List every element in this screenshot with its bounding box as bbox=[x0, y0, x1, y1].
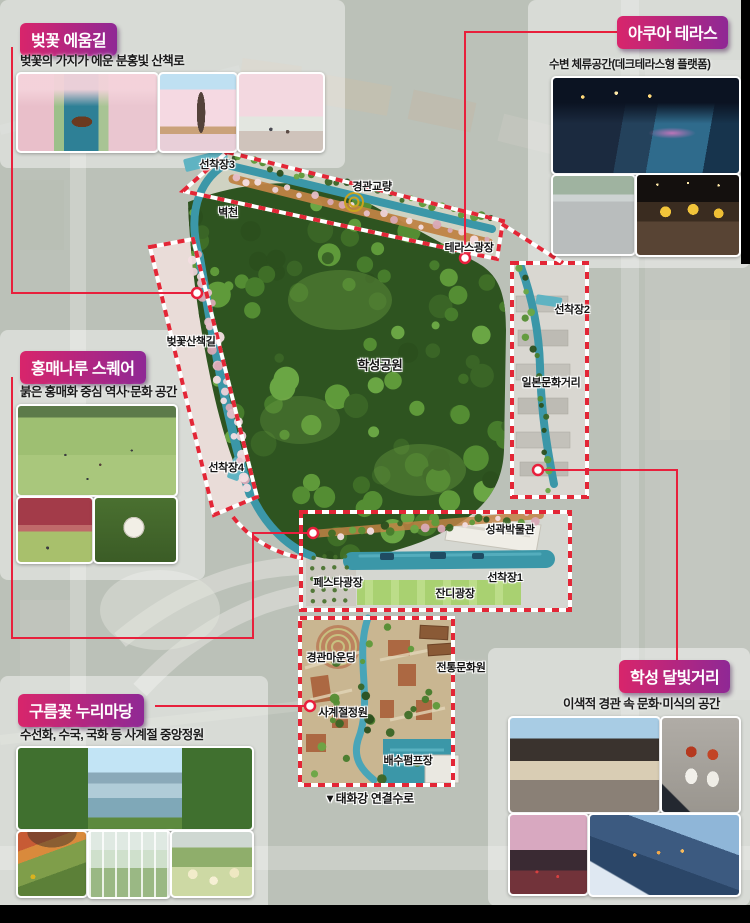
card-title-aqua-terrace: 아쿠아 테라스 bbox=[617, 16, 728, 49]
photo-cherry-canal-boat bbox=[16, 72, 159, 153]
frame-bar-bottom bbox=[0, 905, 750, 923]
marker-japan-street bbox=[533, 465, 543, 475]
card-desc-hongmae-square: 붉은 홍매화 중심 역사·문화 공간 bbox=[20, 381, 177, 400]
card-desc-aqua-terrace: 수변 체류공간(데크테라스형 플랫폼) bbox=[549, 56, 710, 72]
map-label-dock2: 선착장2 bbox=[554, 301, 589, 317]
card-title-hongmae-square: 홍매나루 스퀘어 bbox=[20, 351, 146, 384]
map-label-traditional-culture-center: 전통문화원 bbox=[436, 659, 485, 675]
map-label-festa-plaza: 페스타광장 bbox=[313, 574, 362, 590]
card-title-cloud-flower-yard: 구름꽃 누리마당 bbox=[18, 694, 144, 727]
map-label-lawn-plaza: 잔디광장 bbox=[435, 585, 474, 601]
marker-festa-plaza bbox=[308, 528, 318, 538]
map-label-terrace-plaza: 테라스광장 bbox=[444, 239, 493, 255]
map-label-hakseong-park: 학성공원 bbox=[358, 355, 403, 374]
map-label-cherry-walk: 벚꽃산책길 bbox=[166, 333, 215, 349]
map-label-landscape-bridge: 경관교량 bbox=[352, 178, 391, 194]
photo-night-stream bbox=[551, 76, 741, 175]
photo-street-food bbox=[660, 716, 741, 814]
marker-cherry-walk bbox=[192, 288, 202, 298]
photo-night-market bbox=[635, 173, 741, 257]
garden-block bbox=[300, 618, 459, 785]
map-label-dock4: 선착장4 bbox=[208, 459, 243, 475]
photo-snowy-canal bbox=[588, 813, 741, 897]
map-label-dock3: 선착장3 bbox=[199, 156, 234, 172]
marker-four-season-garden bbox=[305, 701, 315, 711]
map-label-four-season-garden: 사계절정원 bbox=[318, 704, 367, 720]
card-desc-cloud-flower-yard: 수선화, 수국, 국화 등 사계절 중앙정원 bbox=[20, 724, 204, 743]
photo-hydrangea-beds bbox=[170, 830, 254, 898]
photo-night-hanami bbox=[508, 813, 589, 896]
map-label-pump-station: 배수펌프장 bbox=[383, 752, 432, 768]
traditional-culture-buildings bbox=[420, 625, 449, 639]
photo-japanese-street bbox=[508, 716, 661, 814]
map-label-castle-museum: 성곽박물관 bbox=[485, 521, 534, 537]
frame-bar-right bbox=[741, 0, 750, 264]
photo-flower-garden-path bbox=[16, 830, 88, 898]
photo-cherry-promenade bbox=[237, 72, 325, 153]
map-label-landscape-mounding: 경관마운딩 bbox=[306, 649, 355, 665]
photo-tree-lined-canal bbox=[16, 746, 254, 831]
card-title-moonlight-street: 학성 달빛거리 bbox=[619, 660, 730, 693]
map-label-taehwa-river-waterway: ▼태화강 연결수로 bbox=[324, 790, 414, 807]
photo-greenhouse bbox=[87, 830, 171, 899]
map-label-japan-street: 일본문화거리 bbox=[522, 374, 581, 390]
card-desc-moonlight-street: 이색적 경관 속 문화·미식의 공간 bbox=[563, 693, 720, 712]
map-label-dock1: 선착장1 bbox=[487, 569, 522, 585]
photo-sphere-pavilion bbox=[93, 496, 178, 564]
photo-deck-plaza bbox=[551, 174, 636, 256]
map-label-wall-fountain: 벽천 bbox=[218, 204, 238, 220]
photo-lawn-square bbox=[16, 404, 178, 497]
park-plan-infographic: 선착장3 경관교량 벽천 테라스광장 선착장2 벚꽃산책길 학성공원 일본문화거… bbox=[0, 0, 750, 923]
photo-red-plum-trees bbox=[16, 496, 94, 564]
photo-cherry-tree bbox=[158, 72, 238, 153]
card-desc-cherry-path: 벚꽃의 가지가 에운 분홍빛 산책로 bbox=[20, 50, 184, 69]
